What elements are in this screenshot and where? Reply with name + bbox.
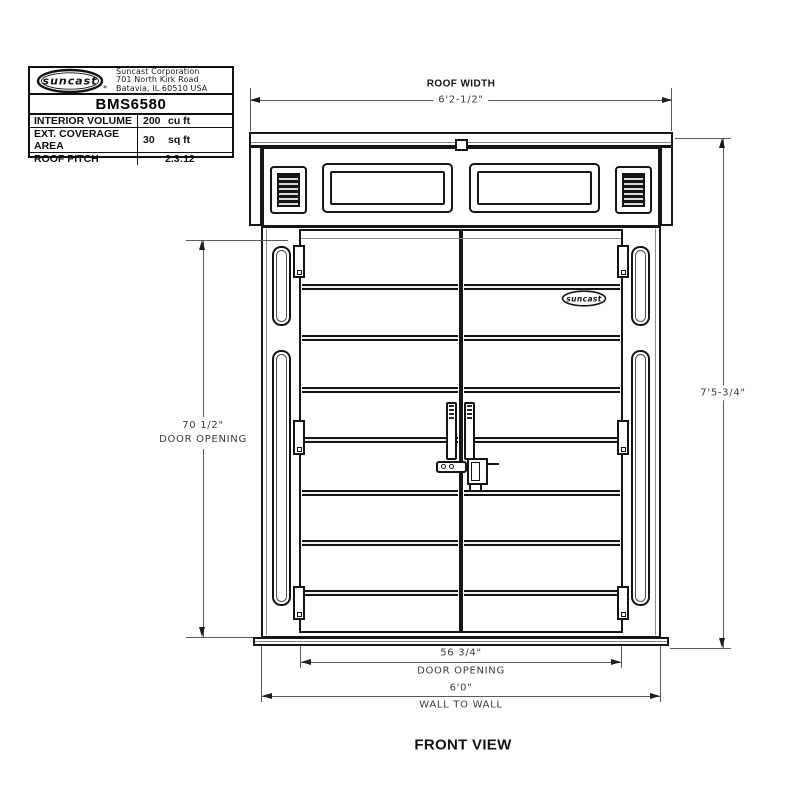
base-rail-line	[255, 641, 667, 642]
door-rib	[302, 540, 458, 546]
left-door-handle	[446, 402, 457, 460]
door-rib	[464, 490, 620, 496]
door-opening-width-value: 56 3/4"	[435, 648, 487, 659]
dimension-arrow	[719, 138, 725, 148]
logo-registered-mark: *	[103, 84, 107, 93]
left-door-hinge-bottom	[293, 586, 305, 620]
hinge-pin	[297, 612, 302, 617]
dimension-line	[261, 696, 661, 697]
handle-grip	[467, 405, 472, 420]
hinge-pin	[621, 612, 626, 617]
door-rib	[464, 540, 620, 546]
dimension-arrow	[262, 693, 272, 699]
suncast-logo-text: suncast	[43, 74, 98, 87]
door-opening-height-callout: 70 1/2" DOOR OPENING	[155, 417, 251, 449]
left-window-pane	[330, 171, 445, 205]
right-door-hinge-middle	[617, 420, 629, 455]
slot-inner-line	[635, 250, 646, 322]
extension-line	[621, 646, 622, 668]
door-rib	[464, 437, 620, 443]
right-wall-inner-line	[655, 229, 656, 635]
extension-line	[186, 637, 262, 638]
latch-pin	[486, 463, 499, 465]
spec-row-coverage-area: EXT. COVERAGE AREA 30 sq ft	[30, 127, 232, 152]
door-rib	[464, 335, 620, 341]
right-pillar-slot-long	[631, 350, 650, 606]
roof-width-title: ROOF WIDTH	[422, 79, 500, 90]
company-city: Batavia, IL 60510 USA	[116, 85, 207, 94]
left-wall-inner-line	[266, 229, 267, 635]
dimension-arrow	[650, 693, 660, 699]
roof-width-value: 6'2-1/2"	[433, 95, 488, 106]
right-pillar-slot-short	[631, 246, 650, 326]
door-rib	[302, 590, 458, 596]
door-opening-height-label: DOOR OPENING	[159, 433, 247, 447]
door-top-trim-line	[301, 238, 621, 239]
door-brand-text: suncast	[566, 294, 602, 303]
latch-hole	[441, 464, 446, 469]
slot-inner-line	[276, 250, 287, 322]
extension-line	[660, 646, 661, 702]
door-opening-height-value: 70 1/2"	[159, 419, 247, 433]
hinge-pin	[621, 447, 626, 452]
spec-row-interior-volume: INTERIOR VOLUME 200 cu ft	[30, 115, 232, 127]
spec-value: 2.3:12	[138, 153, 198, 165]
right-door-handle	[464, 402, 475, 460]
hinge-pin	[297, 447, 302, 452]
dimension-arrow	[301, 659, 311, 665]
hinge-pin	[297, 270, 302, 275]
door-opening-width-label: DOOR OPENING	[412, 666, 510, 677]
right-door-hinge-top	[617, 245, 629, 278]
dimension-line	[300, 662, 622, 663]
title-block: suncast * Suncast Corporation 701 North …	[28, 66, 234, 158]
handle-grip	[449, 405, 454, 420]
left-pillar-slot-short	[272, 246, 291, 326]
latch-hole	[449, 464, 454, 469]
door-rib	[302, 284, 458, 290]
left-roof-end-cap	[249, 146, 262, 226]
view-title: FRONT VIEW	[414, 737, 511, 754]
right-vent-louver-icon	[622, 173, 645, 207]
dimension-arrow	[250, 97, 260, 103]
latch-foot	[469, 483, 482, 492]
extension-line	[670, 648, 731, 649]
right-door-hinge-bottom	[617, 586, 629, 620]
dimension-arrow	[199, 627, 205, 637]
left-door-hinge-middle	[293, 420, 305, 455]
latch-hasp-inner	[471, 462, 480, 481]
door-brand-logo-icon: suncast	[561, 290, 607, 307]
spec-value: 30	[138, 134, 168, 146]
spec-value: 200	[138, 115, 168, 127]
extension-line	[250, 88, 251, 131]
extension-line	[671, 88, 672, 131]
overall-height-value: 7'5-3/4"	[698, 386, 747, 401]
hinge-pin	[621, 270, 626, 275]
right-roof-end-cap	[660, 146, 673, 226]
left-vent-louver-icon	[277, 173, 300, 207]
right-window-pane	[477, 171, 592, 205]
door-rib	[464, 387, 620, 393]
door-rib	[302, 335, 458, 341]
company-address: Suncast Corporation 701 North Kirk Road …	[116, 68, 207, 94]
door-rib	[302, 490, 458, 496]
door-rib	[302, 387, 458, 393]
door-rib	[464, 590, 620, 596]
spec-unit: sq ft	[168, 134, 232, 146]
roof-ridge-notch	[455, 139, 468, 151]
dimension-arrow	[662, 97, 672, 103]
left-pillar-slot-long	[272, 350, 291, 606]
spec-label: EXT. COVERAGE AREA	[30, 128, 138, 152]
dimension-arrow	[611, 659, 621, 665]
wall-to-wall-label: WALL TO WALL	[414, 700, 507, 711]
spec-row-roof-pitch: ROOF PITCH 2.3:12	[30, 152, 232, 165]
slot-inner-line	[635, 354, 646, 602]
left-door	[299, 229, 461, 633]
spec-label: INTERIOR VOLUME	[30, 115, 138, 127]
left-door-hinge-top	[293, 245, 305, 278]
spec-unit: cu ft	[168, 115, 232, 127]
dimension-arrow	[199, 240, 205, 250]
wall-to-wall-value: 6'0"	[445, 683, 478, 694]
drawing-sheet: suncast * Suncast Corporation 701 North …	[0, 0, 800, 800]
title-block-header-row: suncast * Suncast Corporation 701 North …	[30, 68, 232, 95]
suncast-logo-icon: suncast *	[34, 68, 110, 94]
dimension-arrow	[719, 638, 725, 648]
slot-inner-line	[276, 354, 287, 602]
model-number: BMS6580	[30, 95, 232, 115]
door-rib	[302, 437, 458, 443]
spec-label: ROOF PITCH	[30, 153, 138, 165]
